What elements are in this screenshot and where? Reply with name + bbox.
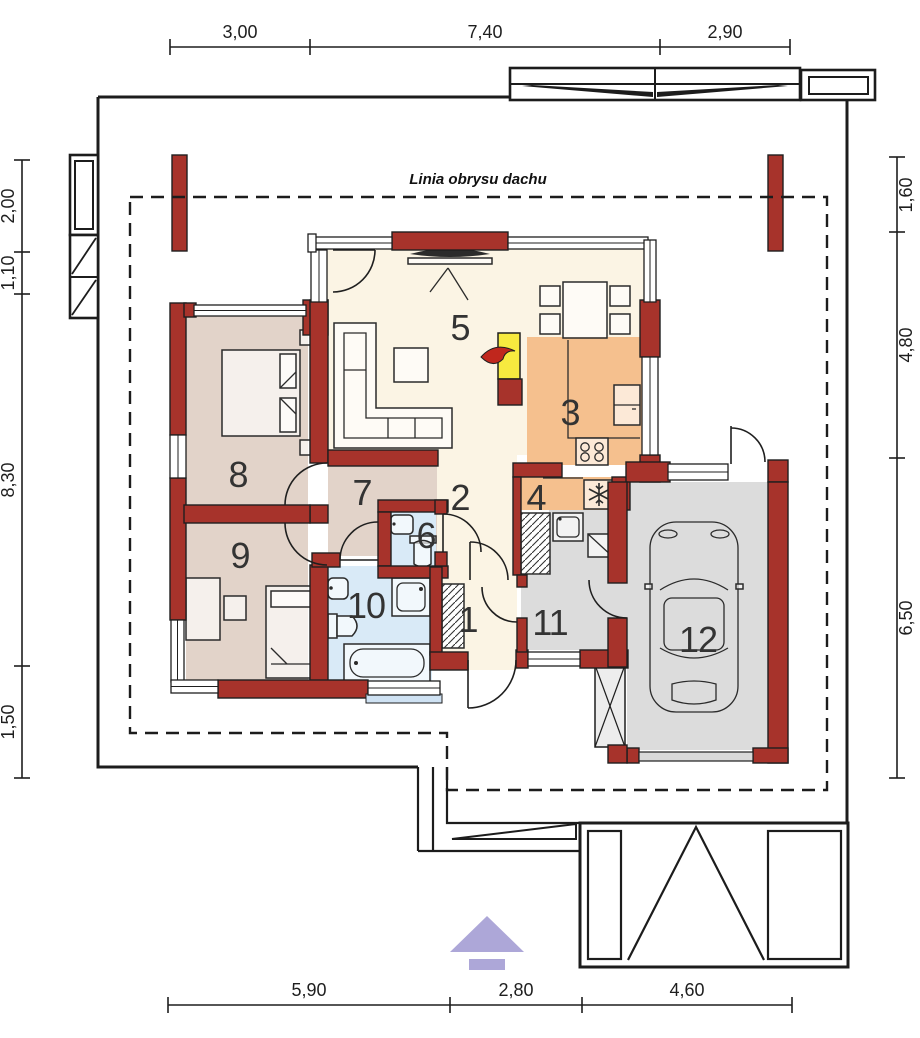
room-label-12: 12 (679, 619, 717, 660)
svg-text:6,50: 6,50 (896, 600, 916, 635)
room-label-10: 10 (347, 585, 385, 626)
room-label-3: 3 (560, 392, 579, 433)
window (311, 250, 327, 302)
svg-text:1,60: 1,60 (896, 177, 916, 212)
window (194, 305, 306, 316)
chimney-duct (595, 665, 625, 747)
stove-icon (576, 438, 608, 465)
svg-text:2,90: 2,90 (707, 22, 742, 42)
room-label-9: 9 (230, 535, 249, 576)
roof-outline-label: Linia obrysu dachu (409, 171, 547, 188)
driveway (580, 823, 848, 967)
window (170, 435, 186, 478)
svg-text:2,00: 2,00 (0, 188, 18, 223)
window (508, 237, 648, 249)
svg-text:2,80: 2,80 (498, 980, 533, 1000)
fence-pillar-right (768, 155, 783, 251)
wardrobe (521, 513, 550, 574)
window (644, 240, 656, 302)
svg-text:8,30: 8,30 (0, 462, 18, 497)
side-gate (70, 155, 98, 318)
svg-text:1,50: 1,50 (0, 704, 18, 739)
entrance-gate (510, 68, 875, 100)
dimension-right: 1,60 4,80 6,50 (889, 157, 916, 778)
room-label-7: 7 (352, 472, 371, 513)
room-label-1: 1 (458, 599, 477, 640)
entrance-arrow-icon (450, 916, 524, 970)
fence-pillar-left (172, 155, 187, 251)
floor-plan-canvas: Linia obrysu dachu (0, 0, 920, 1038)
window (366, 681, 442, 703)
svg-text:4,80: 4,80 (896, 327, 916, 362)
svg-text:1,10: 1,10 (0, 255, 18, 290)
door-garage-side (731, 426, 765, 464)
bathtub-icon (344, 644, 430, 682)
dimension-top: 3,00 7,40 2,90 (170, 22, 790, 55)
washing-machine-icon (553, 513, 583, 541)
room-label-6: 6 (416, 515, 435, 556)
svg-text:3,00: 3,00 (222, 22, 257, 42)
svg-text:5,90: 5,90 (291, 980, 326, 1000)
window (528, 652, 580, 666)
window (668, 464, 728, 480)
svg-text:7,40: 7,40 (467, 22, 502, 42)
fridge-icon (614, 385, 640, 425)
wc-sink-icon (391, 515, 413, 534)
room-label-8: 8 (228, 454, 247, 495)
dimension-bottom: 5,90 2,80 4,60 (168, 980, 792, 1013)
svg-text:4,60: 4,60 (669, 980, 704, 1000)
window (642, 357, 658, 455)
coffee-table (394, 348, 428, 382)
room-label-4: 4 (526, 477, 545, 518)
dimension-left: 2,00 1,10 8,30 1,50 (0, 160, 30, 778)
room-label-2: 2 (450, 477, 469, 518)
walkway (418, 767, 580, 851)
bath-sink-icon (328, 578, 348, 599)
room-label-11: 11 (532, 602, 567, 643)
room-label-5: 5 (450, 307, 469, 348)
shower-icon (392, 578, 430, 616)
